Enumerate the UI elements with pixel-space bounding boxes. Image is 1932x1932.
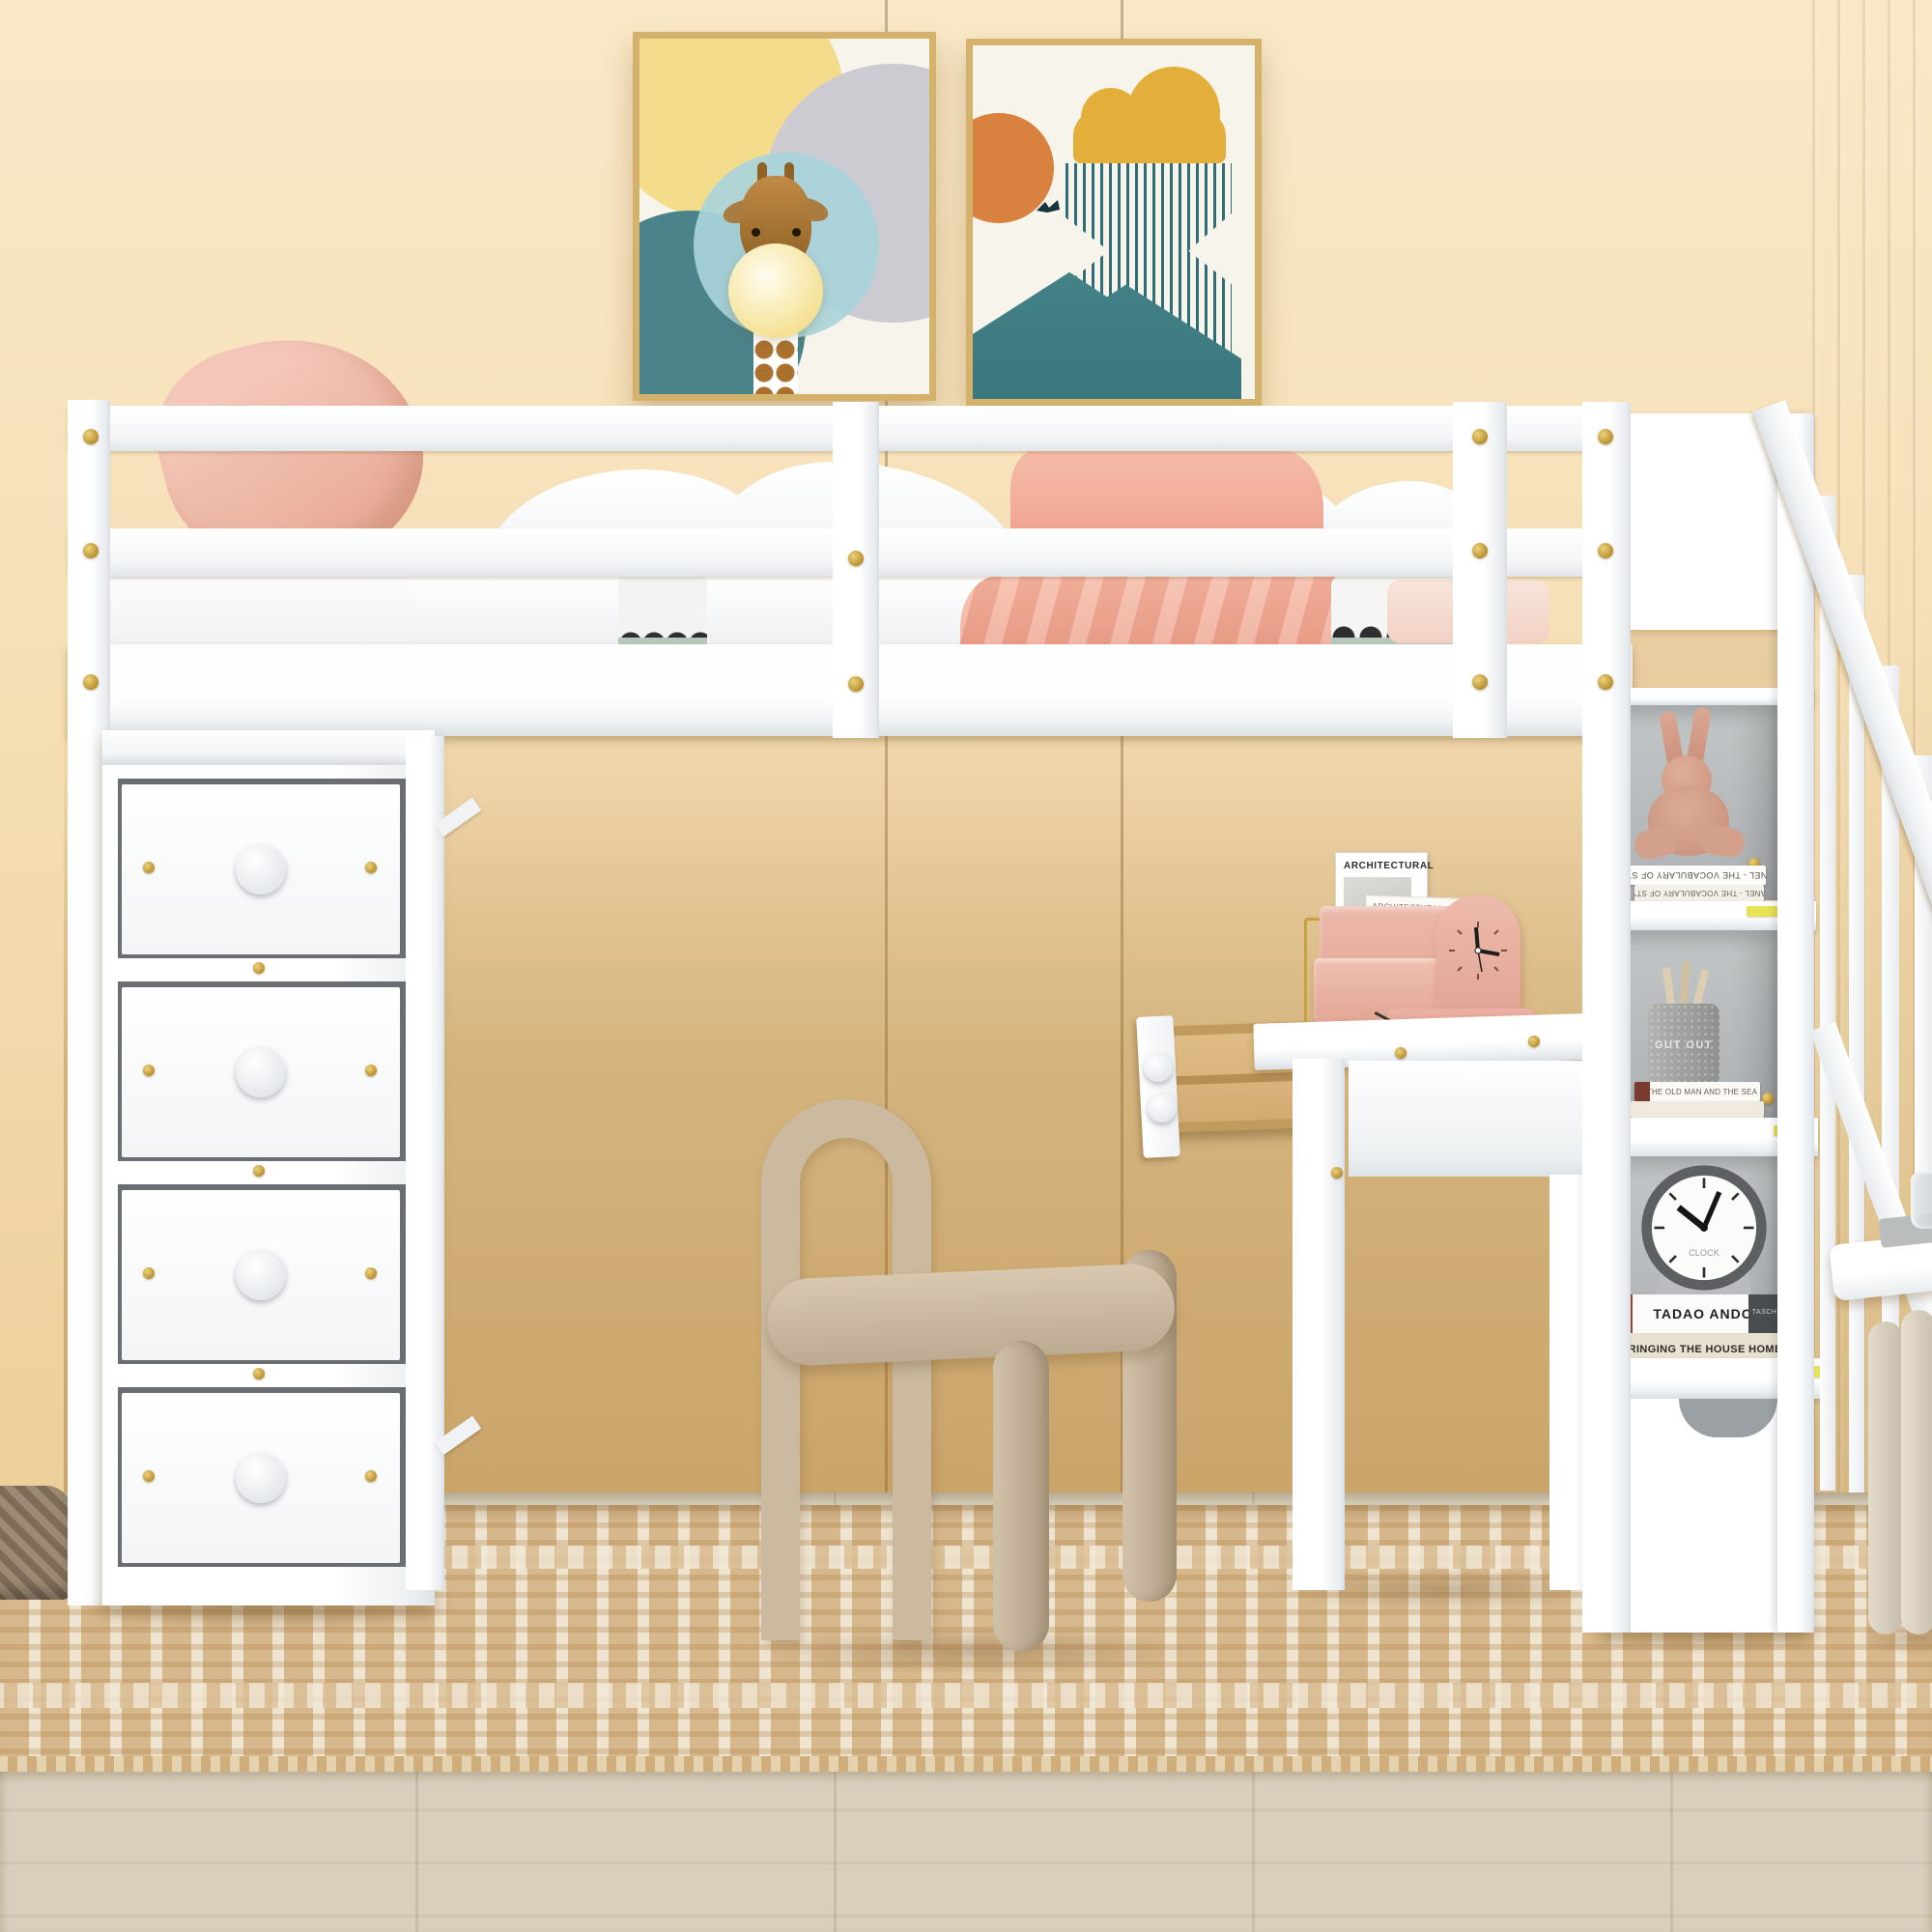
chair-front-right-leg [993,1341,1049,1652]
book-under-cup [1631,1101,1764,1118]
tower-right-stringer [1777,413,1814,1633]
alarm-clock: CLOCK [1640,1164,1768,1292]
book-old-man-sea: THE OLD MAN AND THE SEA [1634,1082,1760,1101]
gold-screw [143,1267,155,1279]
fluted-pouf-column [1901,1310,1932,1634]
chair-seat[interactable] [765,1263,1177,1367]
dresser-drawer-2[interactable] [122,987,400,1157]
gold-screw [1472,543,1488,558]
gold-screw [83,674,99,690]
pencil-cup-text: GUT OUT [1655,1039,1713,1051]
art-print-mountain [966,39,1262,406]
dresser-drawer-4[interactable] [122,1393,400,1563]
gold-screw [365,1470,377,1482]
book-spine-text: BRINGING THE HOUSE HOME [1620,1344,1782,1355]
drawer-knob[interactable] [236,844,286,895]
gold-screw [1472,674,1488,690]
dino-spikes-pattern [618,620,707,639]
art-print-giraffe [633,32,936,401]
gold-screw [365,862,377,873]
desk-drawer-front[interactable] [1136,1015,1180,1158]
dresser-top-lip [102,730,435,765]
gold-screw [1598,674,1613,690]
stair-baluster [1820,496,1835,1491]
half-moon-cutout-handle[interactable] [1679,1399,1777,1437]
desk-drawer-knob[interactable] [1148,1094,1177,1122]
rug-fringe-edge [0,1756,1932,1772]
pink-blanket-lower [960,576,1387,647]
tower-wall-gap-shade [1631,630,1777,688]
gold-screw [1331,1167,1343,1179]
drawer-knob[interactable] [236,1250,286,1300]
gold-screw [1528,1036,1540,1047]
gold-screw [253,962,265,974]
pencil-cup: GUT OUT [1648,1004,1719,1087]
fluted-pouf-column [1868,1321,1903,1634]
book-chanel-bottom: CHANEL - THE VOCABULARY OF STYLE [1634,885,1764,901]
drawer-knob[interactable] [236,1453,286,1503]
giraffe-eyes [752,228,760,237]
dresser-drawer-1[interactable] [122,784,400,954]
rug-band-bottom [0,1683,1932,1708]
book-spine-text: THE OLD MAN AND THE SEA [1647,1088,1757,1096]
book-spine-text: TADAO ANDO [1653,1306,1752,1321]
arch-clock-face [1443,916,1513,985]
book-spine-text: CHANEL - THE VOCABULARY OF STYLE [1629,870,1766,880]
chair-arch-backrest [761,1099,931,1640]
woven-basket [0,1486,71,1600]
gold-screw [253,1165,265,1177]
gold-screw [848,551,864,566]
dresser-drawer-3[interactable] [122,1190,400,1360]
gold-screw [365,1065,377,1076]
gold-screw [1598,429,1613,444]
drinking-glass [1911,1173,1932,1229]
book-spine-chip [1634,1082,1650,1101]
desk-leg-left [1293,1059,1345,1590]
pink-blanket-upper [1010,450,1323,531]
arch-clock [1435,895,1520,1022]
cloud-lobe-large [1127,67,1220,159]
bird-icon [1037,200,1062,213]
gold-screw [143,1065,155,1076]
bubble-gum-shape [728,243,823,338]
gold-screw [83,543,99,558]
gold-screw [143,1470,155,1482]
drawer-knob[interactable] [236,1047,286,1097]
desk-modesty-panel [1349,1061,1602,1177]
gold-screw [848,676,864,692]
bunny-leg-right [1698,823,1747,860]
gold-screw [1395,1047,1406,1059]
gold-screw [365,1267,377,1279]
book-spine-text: CHANEL - THE VOCABULARY OF STYLE [1634,889,1764,897]
bed-support-post [406,736,444,1590]
gold-screw [253,1368,265,1379]
tower-front-post [1582,402,1631,1633]
alarm-clock-text: CLOCK [1689,1248,1720,1258]
gold-screw [1472,429,1488,444]
bedroom-scene: ARCHITECTURAL ARCHITECTURAL [0,0,1932,1932]
magazine-title: ARCHITECTURAL [1336,853,1427,873]
gold-screw [83,429,99,444]
book-chanel-top: CHANEL - THE VOCABULARY OF STYLE [1629,866,1766,885]
dino-pillow-left [618,574,707,647]
gold-screw [1598,543,1613,558]
gold-screw [143,862,155,873]
desk-drawer-knob[interactable] [1144,1053,1173,1082]
book-tadao-ando: TADAO ANDO TASCHEN [1621,1294,1785,1333]
